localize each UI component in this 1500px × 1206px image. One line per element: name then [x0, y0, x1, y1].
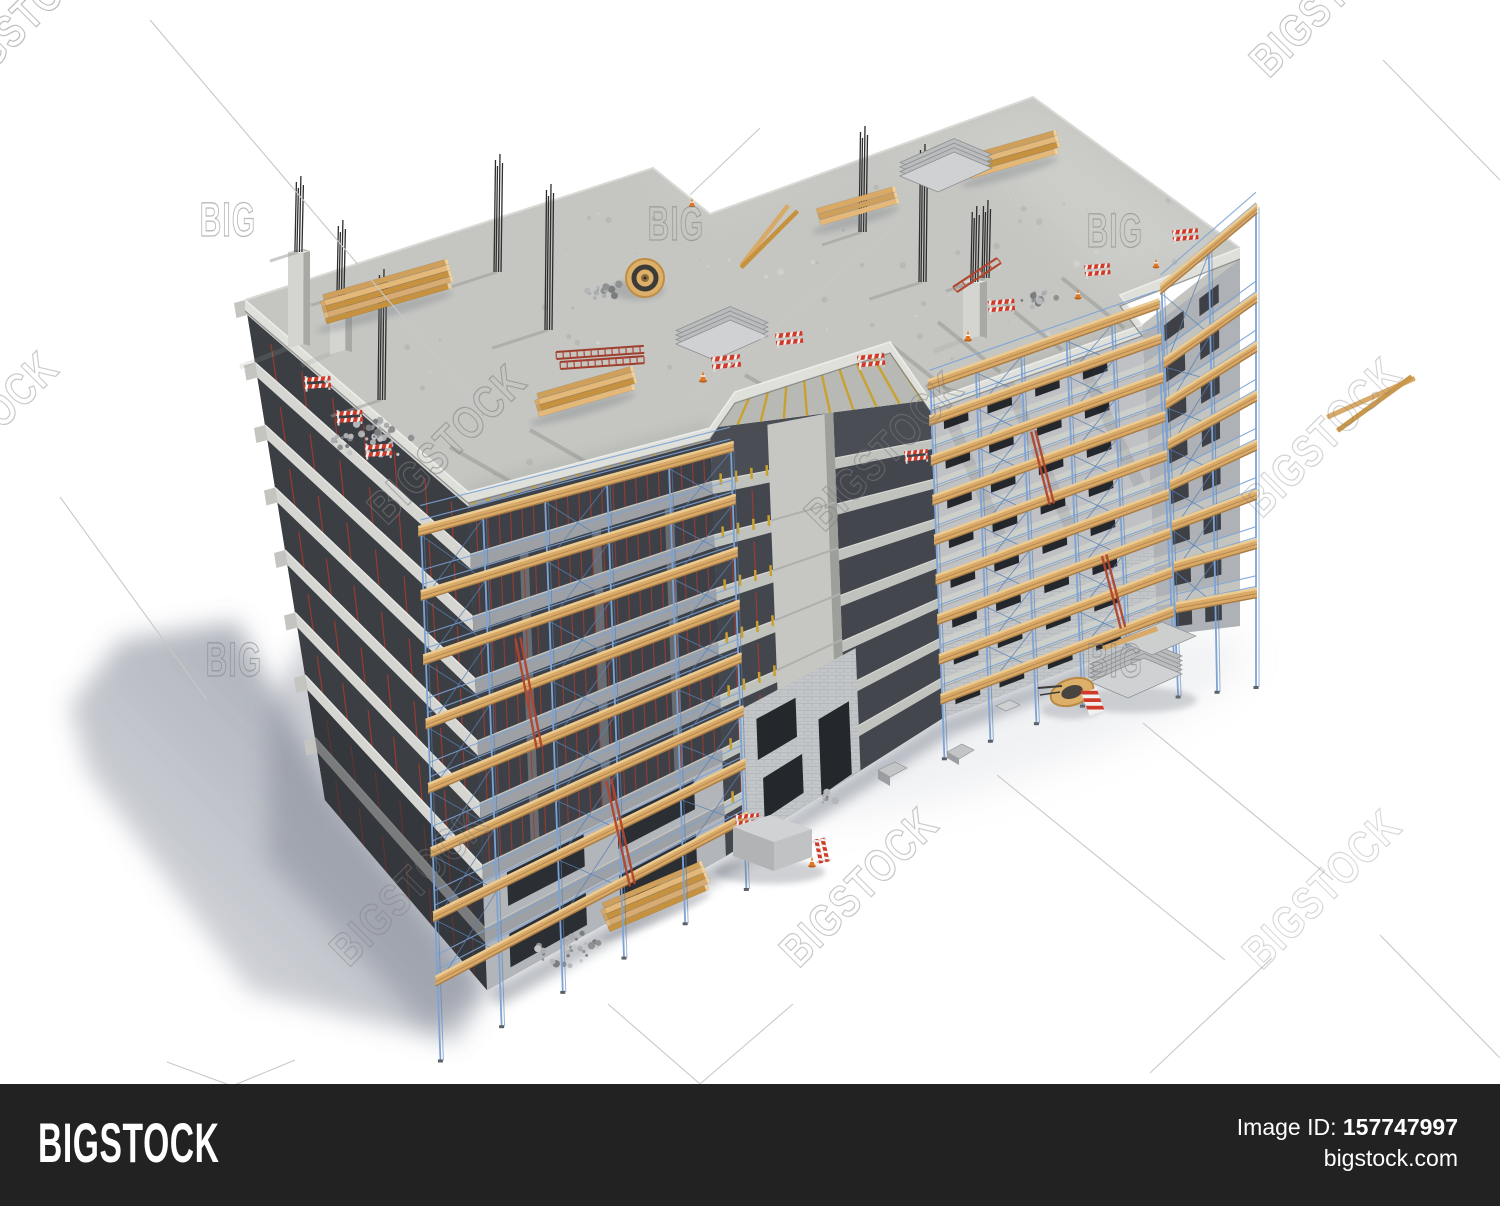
watermark-big: BIG [206, 634, 263, 687]
watermark-bigstock: BIGSTOCK [1240, 0, 1419, 86]
watermark-line [1383, 60, 1500, 180]
watermark-line [1143, 723, 1333, 880]
watermark-line [997, 775, 1225, 960]
stock-photo-preview: BIGSTOCKBIGSTOCKBIGSTOCKBIGSTOCKBIGSTOCK… [0, 0, 1500, 1206]
footer-bar: BIGSTOCK Image ID: 157747997 bigstock.co… [0, 1084, 1500, 1206]
watermark-line [608, 1004, 700, 1084]
website-link[interactable]: bigstock.com [1237, 1143, 1458, 1174]
watermark-bigstock: BIGSTOCK [1233, 800, 1412, 979]
image-id-label: Image ID: [1237, 1114, 1337, 1140]
construction-photo: BIGSTOCKBIGSTOCKBIGSTOCKBIGSTOCKBIGSTOCK… [0, 0, 1500, 1206]
rebar-starter [270, 176, 304, 261]
image-id-line: Image ID: 157747997 [1237, 1112, 1458, 1143]
watermark-bigstock: BIGSTOCK [0, 342, 68, 521]
watermark-big: BIG [200, 194, 257, 247]
watermark-big: BIG [648, 198, 705, 251]
watermark-line [1380, 935, 1500, 1058]
traffic-barrier [812, 837, 831, 864]
watermark-big: BIG [1087, 205, 1144, 258]
footer-meta: Image ID: 157747997 bigstock.com [1237, 1112, 1458, 1174]
watermark-line [690, 128, 760, 195]
watermark-line [232, 1060, 295, 1086]
watermark-line [700, 1004, 793, 1084]
watermark-bigstock: BIGSTOCK [0, 0, 113, 106]
bigstock-logo: BIGSTOCK [38, 1110, 220, 1175]
watermark-big: BIG [1087, 635, 1144, 688]
watermark-line [1150, 958, 1272, 1073]
watermark-line [167, 1062, 232, 1086]
image-id-value: 157747997 [1343, 1114, 1458, 1140]
traffic-cone [808, 857, 816, 868]
